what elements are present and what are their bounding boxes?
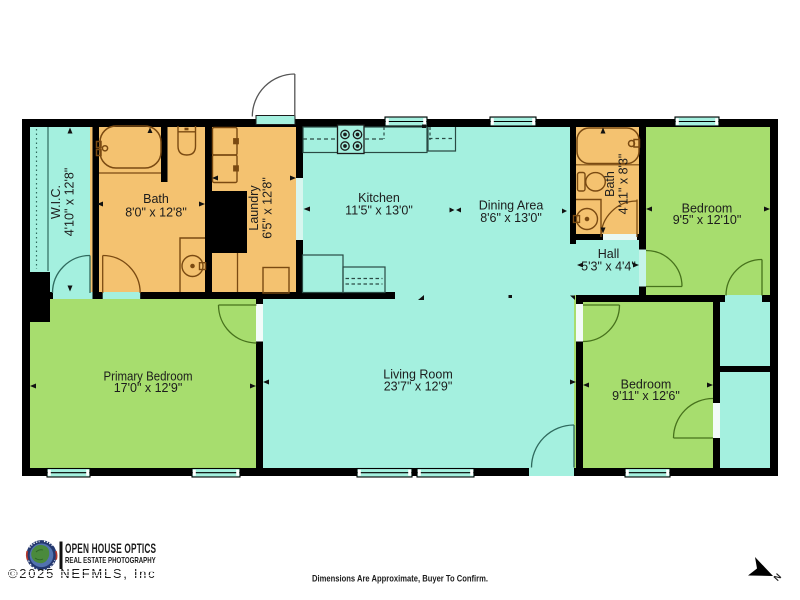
svg-text:8'6" x 13'0": 8'6" x 13'0" xyxy=(480,211,542,225)
svg-text:17'0" x 12'9": 17'0" x 12'9" xyxy=(114,381,183,395)
svg-text:Bath: Bath xyxy=(603,171,617,197)
svg-text:W.I.C.: W.I.C. xyxy=(49,185,63,219)
svg-text:Bath: Bath xyxy=(143,192,169,206)
svg-text:9'5" x 12'10": 9'5" x 12'10" xyxy=(673,213,742,227)
svg-text:©2025 NEFMLS, Inc: ©2025 NEFMLS, Inc xyxy=(8,566,156,581)
svg-text:23'7" x 12'9": 23'7" x 12'9" xyxy=(384,380,453,394)
svg-text:4'11" x 8'3": 4'11" x 8'3" xyxy=(617,154,631,215)
svg-text:6'5" x 12'8": 6'5" x 12'8" xyxy=(261,177,275,239)
svg-text:11'5" x 13'0": 11'5" x 13'0" xyxy=(345,204,413,218)
svg-text:Dimensions Are Approximate, Bu: Dimensions Are Approximate, Buyer To Con… xyxy=(312,574,488,584)
svg-text:8'0" x 12'8": 8'0" x 12'8" xyxy=(125,206,187,220)
svg-text:5'3" x 4'4": 5'3" x 4'4" xyxy=(581,260,636,274)
svg-text:Laundry: Laundry xyxy=(247,185,261,231)
svg-text:REAL ESTATE PHOTOGRAPHY: REAL ESTATE PHOTOGRAPHY xyxy=(65,555,156,565)
svg-text:9'11" x 12'6": 9'11" x 12'6" xyxy=(612,389,680,403)
svg-text:4'10" x 12'8": 4'10" x 12'8" xyxy=(63,168,77,237)
